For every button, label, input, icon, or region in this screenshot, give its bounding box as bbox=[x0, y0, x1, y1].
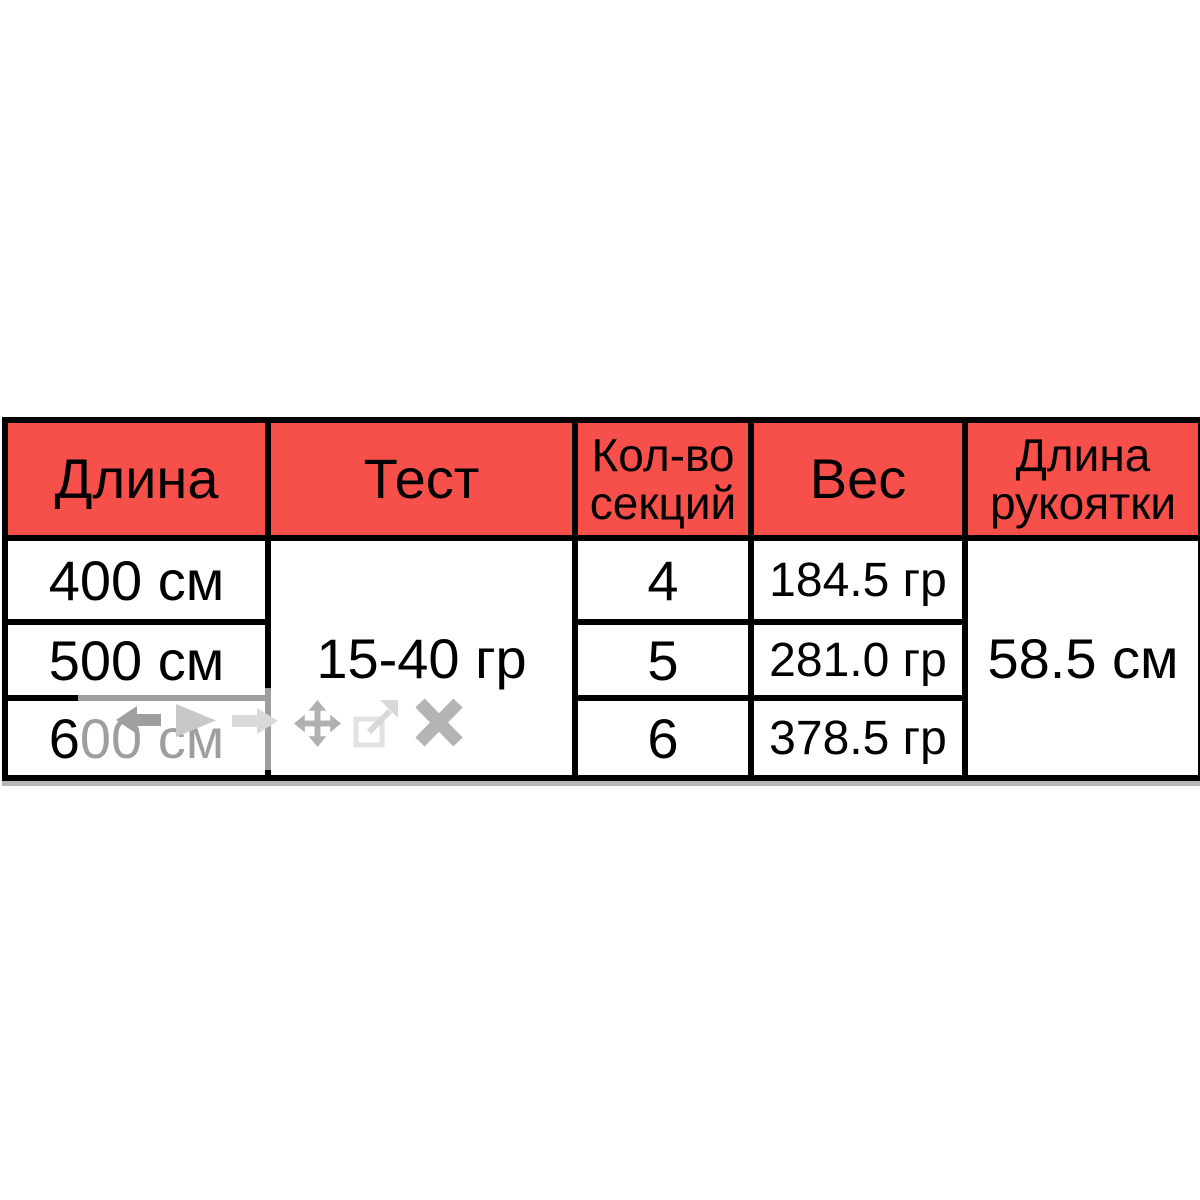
col-header-handle-length: Длина рукоятки bbox=[965, 420, 1200, 538]
move-right-icon[interactable] bbox=[232, 708, 278, 734]
col-header-test: Тест bbox=[268, 420, 575, 538]
weight-cell: 378.5 гр bbox=[751, 698, 965, 778]
sections-cell: 4 bbox=[575, 538, 751, 622]
page: Длина Тест Кол-во секций Вес Длина рукоя… bbox=[0, 0, 1200, 1200]
length-cell: 500 см bbox=[5, 622, 268, 698]
weight-cell: 184.5 гр bbox=[751, 538, 965, 622]
resize-icon[interactable] bbox=[352, 698, 400, 748]
play-icon[interactable] bbox=[176, 704, 216, 737]
col-header-weight: Вес bbox=[751, 420, 965, 538]
handle-length-merged-cell: 58.5 см bbox=[965, 538, 1200, 778]
sections-cell: 6 bbox=[575, 698, 751, 778]
drag-move-icon[interactable] bbox=[294, 700, 341, 747]
table-row: 400 см 15-40 гр 4 184.5 гр 58.5 см bbox=[5, 538, 1200, 622]
length-cell: 400 см bbox=[5, 538, 268, 622]
col-header-sections: Кол-во секций bbox=[575, 420, 751, 538]
col-header-length: Длина bbox=[5, 420, 268, 538]
delete-icon[interactable] bbox=[414, 698, 464, 747]
header-row: Длина Тест Кол-во секций Вес Длина рукоя… bbox=[5, 420, 1200, 538]
weight-cell: 281.0 гр bbox=[751, 622, 965, 698]
move-left-icon[interactable] bbox=[116, 706, 161, 734]
sections-cell: 5 bbox=[575, 622, 751, 698]
